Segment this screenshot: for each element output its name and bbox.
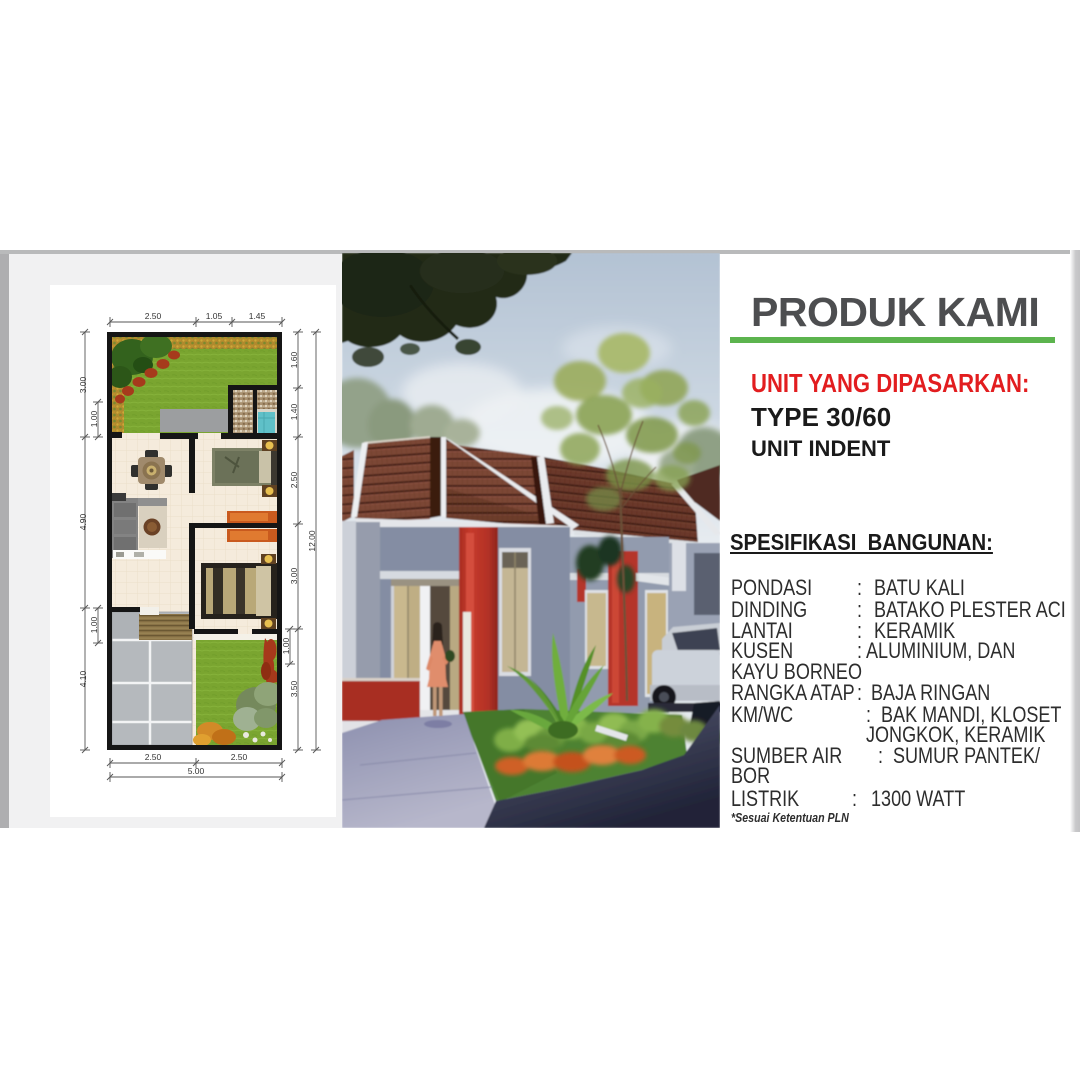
svg-text:1.00: 1.00 <box>89 410 99 427</box>
svg-text:2.50: 2.50 <box>145 311 162 321</box>
svg-text:3.00: 3.00 <box>289 567 299 584</box>
svg-text:2.50: 2.50 <box>145 752 162 762</box>
svg-text:2.50: 2.50 <box>231 752 248 762</box>
svg-text:3.50: 3.50 <box>289 680 299 697</box>
svg-text:4.90: 4.90 <box>78 513 88 530</box>
svg-text:1.60: 1.60 <box>289 351 299 368</box>
svg-text:5.00: 5.00 <box>188 766 205 776</box>
svg-text:1.05: 1.05 <box>206 311 223 321</box>
svg-text:2.50: 2.50 <box>289 471 299 488</box>
svg-text:1.45: 1.45 <box>249 311 266 321</box>
svg-text:1.00: 1.00 <box>281 637 291 654</box>
svg-text:12.00: 12.00 <box>307 530 317 552</box>
svg-text:1.00: 1.00 <box>89 616 99 633</box>
svg-text:4.10: 4.10 <box>78 670 88 687</box>
svg-text:1.40: 1.40 <box>289 403 299 420</box>
svg-text:3.00: 3.00 <box>78 376 88 393</box>
